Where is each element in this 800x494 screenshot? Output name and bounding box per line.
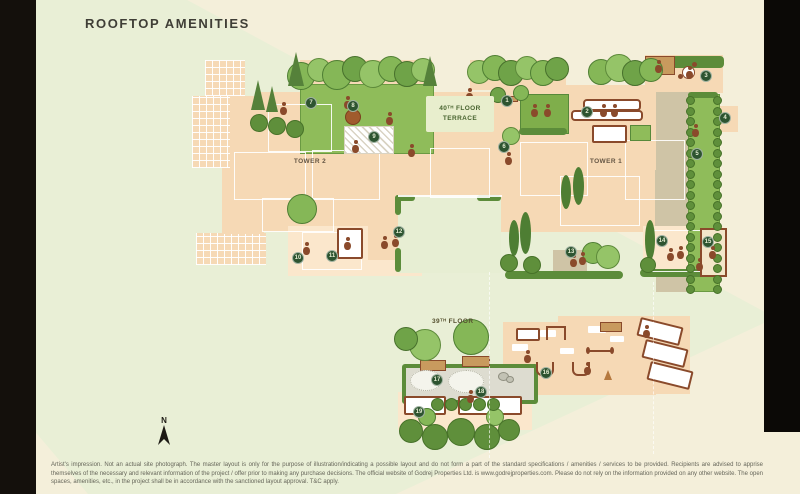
cafe-table <box>682 66 695 79</box>
gym-mat <box>560 348 574 354</box>
hedge-bush <box>713 159 722 168</box>
amenity-marker: 13 <box>565 246 577 258</box>
hedge-bush <box>447 418 475 446</box>
hedge-bush <box>713 96 722 105</box>
hedge-bush <box>686 159 695 168</box>
amenity-marker: 9 <box>368 131 380 143</box>
roof-outline <box>430 148 490 198</box>
amenity-marker: 8 <box>347 100 359 112</box>
amenity-marker: 10 <box>292 252 304 264</box>
hedge-bush <box>686 222 695 231</box>
hedge <box>519 128 567 135</box>
hedge-bush <box>268 117 286 135</box>
zen-stone <box>506 376 514 383</box>
amenity-marker: 1 <box>501 95 513 107</box>
terrace-label-line1: 40ᵀᴴ FLOOR <box>439 104 480 114</box>
tree <box>545 57 569 81</box>
pullup-frame <box>546 326 566 340</box>
hedge-bush <box>445 398 458 411</box>
hedge-bush <box>686 128 695 137</box>
bonsai-planter <box>462 356 490 367</box>
hedge-bush <box>286 120 304 138</box>
hedge-bush <box>686 243 695 252</box>
hedge-bush <box>686 170 695 179</box>
hedge-bush <box>474 424 500 450</box>
roof-grid <box>205 60 245 96</box>
hedge-bush <box>713 254 722 263</box>
cypress-tree <box>509 220 519 256</box>
tower2-label: TOWER 2 <box>282 158 338 165</box>
hedge-bush <box>713 191 722 200</box>
hedge-bush <box>500 254 518 272</box>
amenity-marker: 19 <box>413 406 425 418</box>
hedge-bush <box>686 275 695 284</box>
tree <box>287 194 317 224</box>
hedge-bush <box>686 138 695 147</box>
cypress-tree <box>520 212 531 254</box>
hedge-bush <box>713 212 722 221</box>
gym-mat <box>512 344 528 351</box>
hedge <box>395 195 401 215</box>
amenity-marker: 14 <box>656 235 668 247</box>
hedge-bush <box>498 419 520 441</box>
amenity-marker: 3 <box>700 70 712 82</box>
cafe-chair <box>692 62 697 67</box>
barbell-plate <box>586 347 590 354</box>
gym-bench <box>516 328 540 341</box>
amenity-marker: 11 <box>326 250 338 262</box>
hedge <box>395 248 401 272</box>
north-arrow-icon <box>156 425 172 445</box>
compass-north: N <box>152 416 176 450</box>
rooftop-amenities-page: ROOFTOP AMENITIES 1234567891011121314151… <box>0 0 800 494</box>
path-line <box>398 195 502 197</box>
gym-mat <box>610 336 624 342</box>
amenity-marker: 17 <box>431 374 443 386</box>
roof-outline <box>625 140 685 200</box>
hedge-bush <box>686 201 695 210</box>
amenity-marker: 7 <box>305 97 317 109</box>
cypress-tree <box>573 167 584 205</box>
right-letterbox-bar <box>764 0 800 432</box>
hedge-bush <box>686 180 695 189</box>
hedge-bush <box>713 180 722 189</box>
amenity-marker: 12 <box>393 226 405 238</box>
central-lawn <box>398 197 501 273</box>
hedge-bush <box>686 191 695 200</box>
cypress-tree <box>561 175 571 209</box>
barbell <box>588 350 612 352</box>
hedge-bush <box>713 128 722 137</box>
hedge-bush <box>523 256 541 274</box>
hedge-bush <box>473 398 486 411</box>
hedge-bush <box>686 233 695 242</box>
hedge-bush <box>686 264 695 273</box>
hedge <box>505 271 623 279</box>
hedge-bush <box>713 264 722 273</box>
terrace-label: 40ᵀᴴ FLOOR TERRACE <box>426 96 494 132</box>
hedge-bush <box>459 398 472 411</box>
plot-line <box>489 272 491 458</box>
footer-disclaimer: Artist's impression. Not an actual site … <box>51 461 763 487</box>
hedge-bush <box>713 233 722 242</box>
hedge-bush <box>399 419 423 443</box>
reading-room <box>337 228 363 259</box>
hedge-bush <box>686 117 695 126</box>
hedge-bush <box>686 96 695 105</box>
roof-grid <box>196 233 266 265</box>
plot-line <box>653 282 655 454</box>
roof-grid <box>192 96 232 168</box>
hedge-bush <box>713 170 722 179</box>
hedge-bush <box>713 149 722 158</box>
floor39-label: 39ᵀᴴ FLOOR <box>432 318 473 325</box>
amenity-marker: 4 <box>719 112 731 124</box>
barbell-plate <box>610 347 614 354</box>
tree <box>639 58 663 82</box>
table <box>592 125 627 143</box>
hedge-bush <box>640 257 656 273</box>
amenity-marker: 15 <box>702 236 714 248</box>
amenity-marker: 6 <box>498 141 510 153</box>
compass-n-label: N <box>152 416 176 425</box>
tree <box>513 85 529 101</box>
hedge-bush <box>713 275 722 284</box>
hedge-bush <box>431 398 444 411</box>
hedge-bush <box>713 222 722 231</box>
amenity-marker: 18 <box>475 386 487 398</box>
tree <box>394 327 418 351</box>
dumbbell-rack <box>600 322 622 332</box>
hedge-bush <box>686 254 695 263</box>
hedge-bush <box>686 285 695 294</box>
cafe-chair <box>678 74 683 79</box>
hedge-bush <box>713 138 722 147</box>
cypress-tree <box>645 220 655 260</box>
exercise-bike <box>572 362 590 376</box>
hedge-bush <box>686 212 695 221</box>
tower1-label: TOWER 1 <box>578 158 634 165</box>
site-plan: 12345678910111213141516171819 <box>0 0 800 494</box>
left-letterbox-bar <box>0 0 36 494</box>
hedge-bush <box>686 107 695 116</box>
amenity-marker: 5 <box>691 148 703 160</box>
hedge-bush <box>713 243 722 252</box>
amenity-marker: 16 <box>540 367 552 379</box>
amenity-marker: 2 <box>581 106 593 118</box>
terrace-label-line2: TERRACE <box>443 114 477 124</box>
green-mat <box>630 125 651 141</box>
hedge-bush <box>713 285 722 294</box>
hedge-bush <box>250 114 268 132</box>
hedge-bush <box>422 424 448 450</box>
hedge-bush <box>713 201 722 210</box>
tree <box>596 245 620 269</box>
